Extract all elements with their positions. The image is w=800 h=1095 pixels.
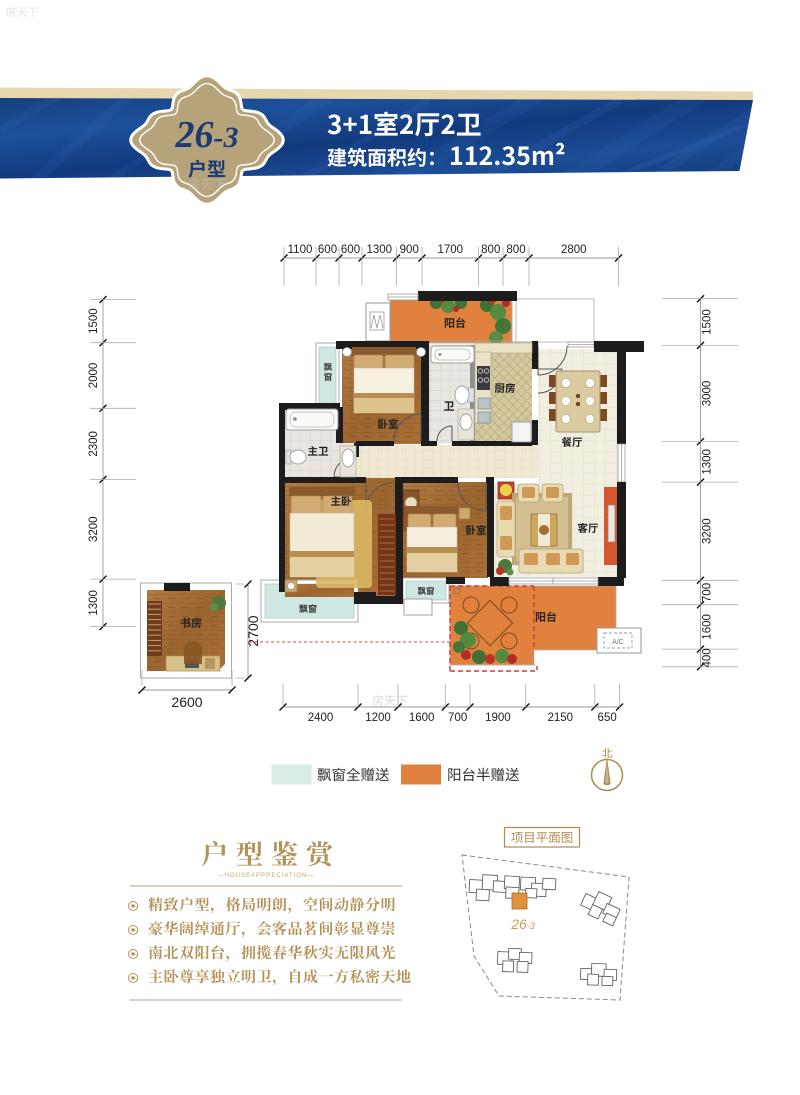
svg-text:1500: 1500 bbox=[88, 308, 100, 334]
svg-text:1600: 1600 bbox=[702, 614, 714, 640]
svg-text:800: 800 bbox=[481, 244, 500, 256]
svg-text:26-3: 26-3 bbox=[175, 114, 239, 156]
svg-text:1700: 1700 bbox=[437, 244, 463, 256]
svg-text:2000: 2000 bbox=[88, 363, 100, 389]
svg-text:1200: 1200 bbox=[365, 712, 391, 724]
svg-text:3000: 3000 bbox=[702, 381, 714, 407]
svg-text:—HOUSEAPPRECIATION—: —HOUSEAPPRECIATION— bbox=[218, 873, 315, 879]
svg-text:2600: 2600 bbox=[171, 694, 202, 710]
svg-text:2150: 2150 bbox=[548, 712, 574, 724]
svg-text:700: 700 bbox=[702, 583, 714, 602]
svg-text:1500: 1500 bbox=[702, 309, 714, 335]
svg-text:3200: 3200 bbox=[88, 516, 100, 542]
svg-text:3200: 3200 bbox=[702, 518, 714, 544]
svg-text:2300: 2300 bbox=[88, 431, 100, 457]
svg-text:1100: 1100 bbox=[288, 244, 313, 256]
svg-text:700: 700 bbox=[448, 712, 467, 724]
svg-text:1600: 1600 bbox=[409, 712, 435, 724]
svg-text:650: 650 bbox=[598, 712, 617, 724]
svg-text:2400: 2400 bbox=[308, 712, 334, 724]
svg-text:800: 800 bbox=[506, 244, 525, 256]
svg-text:600: 600 bbox=[341, 244, 360, 256]
svg-text:1300: 1300 bbox=[366, 244, 392, 256]
svg-text:1300: 1300 bbox=[88, 590, 100, 616]
svg-text:2700: 2700 bbox=[245, 615, 261, 646]
svg-text:900: 900 bbox=[400, 244, 419, 256]
svg-text:600: 600 bbox=[318, 244, 337, 256]
svg-text:1900: 1900 bbox=[485, 712, 511, 724]
svg-text:A/C: A/C bbox=[612, 639, 624, 646]
svg-text:400: 400 bbox=[702, 648, 714, 667]
svg-text:2800: 2800 bbox=[561, 244, 587, 256]
svg-text:1300: 1300 bbox=[702, 449, 714, 475]
